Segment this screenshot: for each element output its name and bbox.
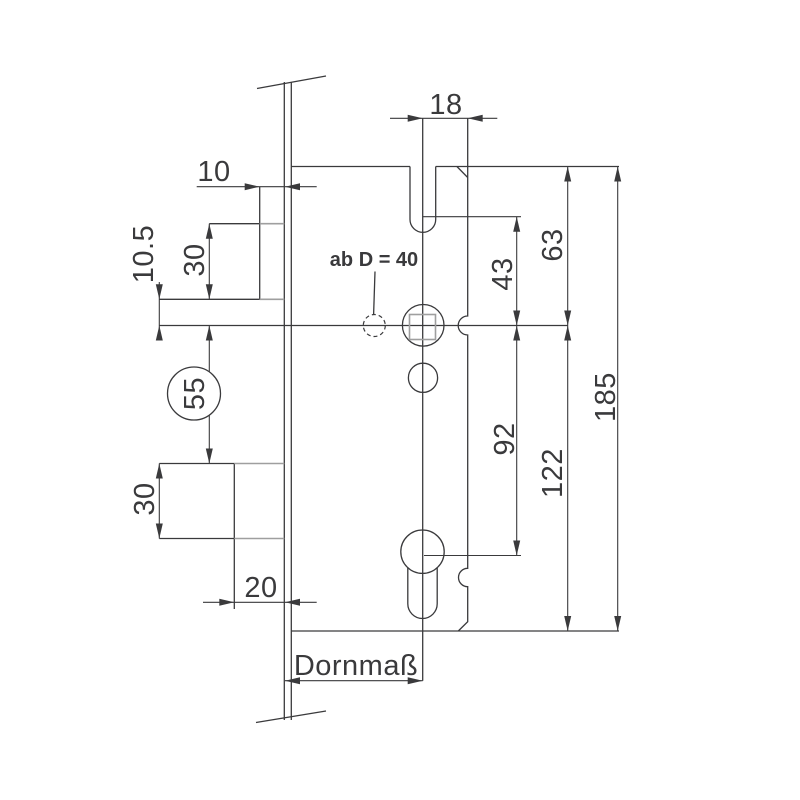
dim-10-5: 10.5 xyxy=(128,225,163,341)
dim-43: 43 xyxy=(423,217,521,326)
dim-122: 122 xyxy=(537,326,571,632)
dim-185-label: 185 xyxy=(590,372,622,422)
dim-55: 55 xyxy=(168,326,221,464)
case-back-edge xyxy=(458,118,468,631)
dim-185: 185 xyxy=(590,167,622,632)
dim-63-label: 63 xyxy=(537,228,569,261)
dim-92-label: 92 xyxy=(489,422,521,455)
dim-18-label: 18 xyxy=(429,89,462,121)
note-leader-line xyxy=(374,272,375,315)
top-corner-chamfer xyxy=(457,167,468,178)
dim-30-latch-label: 30 xyxy=(179,243,211,276)
dim-10-label: 10 xyxy=(197,156,230,188)
dim-122-label: 122 xyxy=(537,448,569,498)
dim-20: 20 xyxy=(203,572,317,606)
dim-18: 18 xyxy=(390,89,497,122)
dim-30-latch: 30 xyxy=(179,224,213,300)
dim-dornmass: Dornmaß xyxy=(285,650,423,684)
dim-55-label: 55 xyxy=(179,377,211,410)
dim-30-deadbolt: 30 xyxy=(129,464,163,539)
dim-63: 63 xyxy=(537,167,571,326)
dim-30-deadbolt-label: 30 xyxy=(129,482,161,515)
dimensions: 18 10 10.5 30 55 xyxy=(128,89,622,684)
mortise-lock-dimension-drawing: 18 10 10.5 30 55 xyxy=(0,0,800,800)
dim-20-label: 20 xyxy=(244,572,277,604)
dim-10: 10 xyxy=(197,156,317,190)
dim-43-label: 43 xyxy=(487,257,519,290)
cylinder-note-label: ab D = 40 xyxy=(330,249,418,271)
dornmass-label: Dornmaß xyxy=(294,650,418,682)
dim-10-5-label: 10.5 xyxy=(128,225,160,283)
dim-92: 92 xyxy=(424,326,521,556)
